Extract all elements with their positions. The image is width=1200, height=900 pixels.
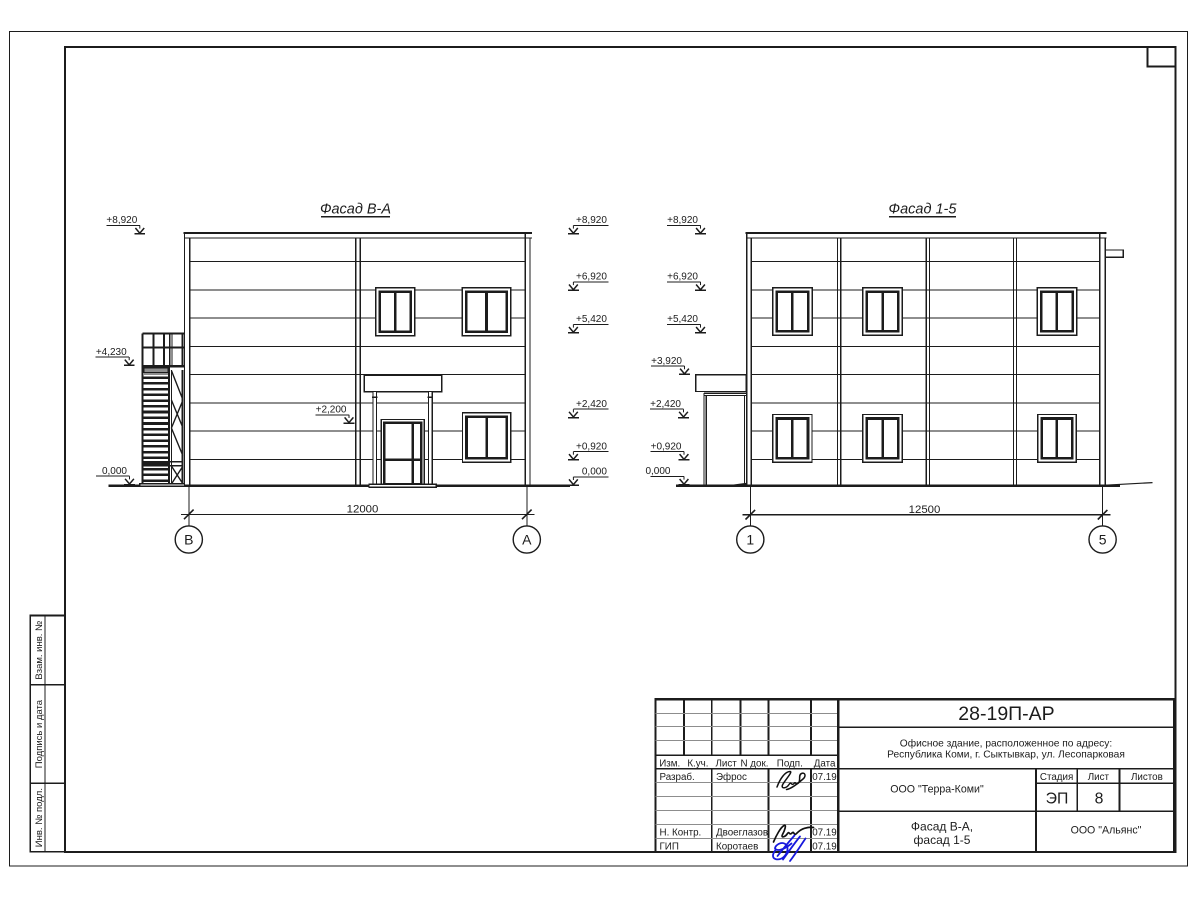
svg-text:+3,920: +3,920 [651,356,682,367]
svg-text:0,000: 0,000 [102,466,127,477]
svg-text:+2,420: +2,420 [576,399,607,410]
svg-text:Н. Контр.: Н. Контр. [660,827,702,838]
svg-text:5: 5 [1099,532,1107,548]
svg-text:Листов: Листов [1131,772,1163,783]
svg-text:Лист: Лист [1088,772,1110,783]
svg-text:+6,920: +6,920 [667,272,698,283]
svg-text:07.19: 07.19 [812,772,837,783]
svg-text:Двоеглазов: Двоеглазов [716,827,768,838]
svg-text:ЭП: ЭП [1046,790,1069,807]
svg-text:+2,200: +2,200 [316,405,347,416]
svg-text:+4,230: +4,230 [96,347,127,358]
svg-text:+5,420: +5,420 [576,314,607,325]
svg-text:1: 1 [746,532,754,548]
svg-text:Офисное здание, расположенное: Офисное здание, расположенное по адресу: [900,737,1112,749]
svg-text:ГИП: ГИП [660,841,679,852]
svg-text:07.19: 07.19 [812,841,837,852]
svg-text:Лист: Лист [715,758,737,769]
svg-text:+0,920: +0,920 [651,441,682,452]
svg-text:К.уч.: К.уч. [687,758,708,769]
svg-text:28-19П-АР: 28-19П-АР [958,703,1054,725]
svg-text:Фасад В-А: Фасад В-А [320,202,391,218]
svg-text:N док.: N док. [741,758,769,769]
svg-text:Взам. инв. №: Взам. инв. № [34,621,45,680]
svg-text:07.19: 07.19 [812,827,837,838]
svg-text:+8,920: +8,920 [106,215,137,226]
svg-text:Республика Коми, г. Сыктывкар,: Республика Коми, г. Сыктывкар, ул. Лесоп… [887,749,1125,761]
svg-text:+5,420: +5,420 [667,314,698,325]
svg-text:Инв. № подл.: Инв. № подл. [34,788,45,847]
svg-text:Подпись и дата: Подпись и дата [34,699,45,768]
svg-text:Разраб.: Разраб. [660,772,695,783]
svg-text:Коротаев: Коротаев [716,841,758,852]
svg-text:8: 8 [1095,790,1104,807]
svg-text:Фасад 1-5: Фасад 1-5 [889,202,958,218]
svg-text:12500: 12500 [909,504,941,516]
svg-text:Стадия: Стадия [1040,772,1073,783]
svg-text:+6,920: +6,920 [576,272,607,283]
svg-text:+8,920: +8,920 [576,215,607,226]
svg-text:Эфрос: Эфрос [716,772,747,783]
svg-text:+8,920: +8,920 [667,215,698,226]
svg-text:0,000: 0,000 [645,466,670,477]
svg-text:+0,920: +0,920 [576,441,607,452]
svg-text:12000: 12000 [347,504,379,516]
svg-text:Фасад В-А,: Фасад В-А, [911,820,973,834]
svg-text:А: А [522,532,532,548]
svg-text:0,000: 0,000 [582,467,607,478]
svg-text:+2,420: +2,420 [650,399,681,410]
svg-text:Подп.: Подп. [777,758,803,769]
svg-text:фасад 1-5: фасад 1-5 [914,833,971,847]
svg-text:В: В [184,532,193,548]
svg-text:Изм.: Изм. [659,758,680,769]
svg-text:ООО "Альянс": ООО "Альянс" [1071,824,1142,836]
svg-text:ООО "Терра-Коми": ООО "Терра-Коми" [890,784,984,796]
svg-text:Дата: Дата [814,758,836,769]
